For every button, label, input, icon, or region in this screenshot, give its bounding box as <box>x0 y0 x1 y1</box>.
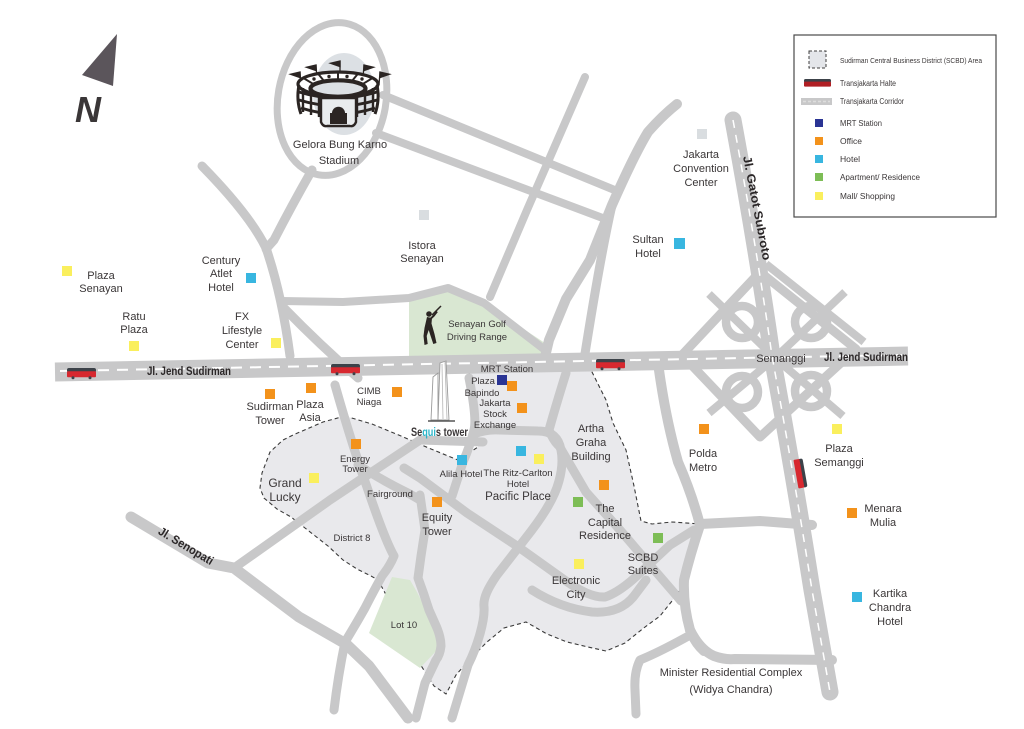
svg-text:Hotel: Hotel <box>208 282 234 294</box>
svg-text:(Widya Chandra): (Widya Chandra) <box>689 684 772 696</box>
svg-text:MRT Station: MRT Station <box>840 119 882 128</box>
svg-text:Plaza: Plaza <box>471 376 495 387</box>
svg-text:Building: Building <box>571 451 610 463</box>
svg-text:Office: Office <box>840 137 863 146</box>
svg-text:Istora: Istora <box>408 240 436 252</box>
svg-text:Apartment/ Residence: Apartment/ Residence <box>840 173 921 182</box>
svg-text:Plaza: Plaza <box>87 270 115 282</box>
svg-text:Lucky: Lucky <box>269 490 300 504</box>
svg-text:Senayan: Senayan <box>79 283 122 295</box>
svg-text:Senayan Golf: Senayan Golf <box>448 319 506 330</box>
svg-text:Driving Range: Driving Range <box>447 332 507 343</box>
svg-text:Jakarta: Jakarta <box>683 149 720 161</box>
svg-text:Hotel: Hotel <box>635 248 661 260</box>
svg-text:MRT Station: MRT Station <box>481 364 533 375</box>
svg-text:Chandra: Chandra <box>869 602 912 614</box>
svg-text:Center: Center <box>225 339 258 351</box>
svg-text:Century: Century <box>202 255 241 267</box>
svg-text:Atlet: Atlet <box>210 268 232 280</box>
svg-text:Tower: Tower <box>422 526 452 538</box>
svg-text:Sudirman Central Business Dist: Sudirman Central Business District (SCBD… <box>840 56 983 65</box>
svg-text:Alila Hotel: Alila Hotel <box>440 469 483 480</box>
svg-text:Suites: Suites <box>628 565 659 577</box>
svg-text:Artha: Artha <box>578 423 605 435</box>
svg-text:SCBD: SCBD <box>628 552 659 564</box>
svg-text:Transjakarta Halte: Transjakarta Halte <box>840 79 896 88</box>
svg-text:Residence: Residence <box>579 530 631 542</box>
svg-text:Asia: Asia <box>299 412 321 424</box>
svg-text:Tower: Tower <box>255 415 285 427</box>
svg-text:Polda: Polda <box>689 448 718 460</box>
svg-text:N: N <box>75 89 102 130</box>
svg-text:Pacific Place: Pacific Place <box>485 491 551 503</box>
svg-text:Stadium: Stadium <box>319 155 359 167</box>
svg-text:Convention: Convention <box>673 163 729 175</box>
svg-text:FX: FX <box>235 311 250 323</box>
svg-text:Menara: Menara <box>864 503 902 515</box>
svg-text:Center: Center <box>684 177 717 189</box>
svg-text:Jl. Jend Sudirman: Jl. Jend Sudirman <box>824 350 908 364</box>
svg-text:Grand: Grand <box>268 476 301 490</box>
svg-text:Equity: Equity <box>422 512 453 524</box>
svg-text:Mall/ Shopping: Mall/ Shopping <box>840 192 895 201</box>
svg-text:Mulia: Mulia <box>870 517 897 529</box>
svg-text:Electronic: Electronic <box>552 575 601 587</box>
svg-text:Tower: Tower <box>342 464 367 475</box>
svg-text:Transjakarta Corridor: Transjakarta Corridor <box>840 97 904 106</box>
svg-text:Sudirman: Sudirman <box>246 401 293 413</box>
svg-text:Niaga: Niaga <box>357 397 383 408</box>
svg-text:Stock: Stock <box>483 409 507 420</box>
svg-text:City: City <box>567 589 586 601</box>
svg-text:Fairground: Fairground <box>367 489 413 500</box>
svg-text:Kartika: Kartika <box>873 588 908 600</box>
svg-text:Lot 10: Lot 10 <box>391 620 417 631</box>
svg-text:Gelora Bung Karno: Gelora Bung Karno <box>293 139 387 151</box>
svg-text:Sequis tower: Sequis tower <box>411 425 468 439</box>
svg-text:Senayan: Senayan <box>400 253 443 265</box>
svg-text:Jl. Jend Sudirman: Jl. Jend Sudirman <box>147 364 231 378</box>
svg-text:Plaza: Plaza <box>825 443 853 455</box>
svg-text:CIMB: CIMB <box>357 386 381 397</box>
svg-text:The Ritz-Carlton: The Ritz-Carlton <box>483 468 552 479</box>
svg-text:Metro: Metro <box>689 462 717 474</box>
svg-text:Exchange: Exchange <box>474 420 516 431</box>
svg-text:Hotel: Hotel <box>507 479 529 490</box>
svg-text:Ratu: Ratu <box>122 311 145 323</box>
svg-text:Lifestyle: Lifestyle <box>222 325 262 337</box>
svg-text:Graha: Graha <box>576 437 607 449</box>
svg-text:Semanggi: Semanggi <box>756 353 806 365</box>
svg-text:Sultan: Sultan <box>632 234 663 246</box>
svg-text:Plaza: Plaza <box>120 324 148 336</box>
svg-text:Plaza: Plaza <box>296 399 324 411</box>
svg-text:Jakarta: Jakarta <box>479 398 511 409</box>
svg-text:Minister Residential Complex: Minister Residential Complex <box>660 667 803 679</box>
svg-text:Semanggi: Semanggi <box>814 457 864 469</box>
svg-text:Hotel: Hotel <box>877 616 903 628</box>
svg-text:The: The <box>596 503 615 515</box>
svg-text:Capital: Capital <box>588 517 622 529</box>
svg-text:Hotel: Hotel <box>840 155 860 164</box>
svg-text:District 8: District 8 <box>334 533 371 544</box>
